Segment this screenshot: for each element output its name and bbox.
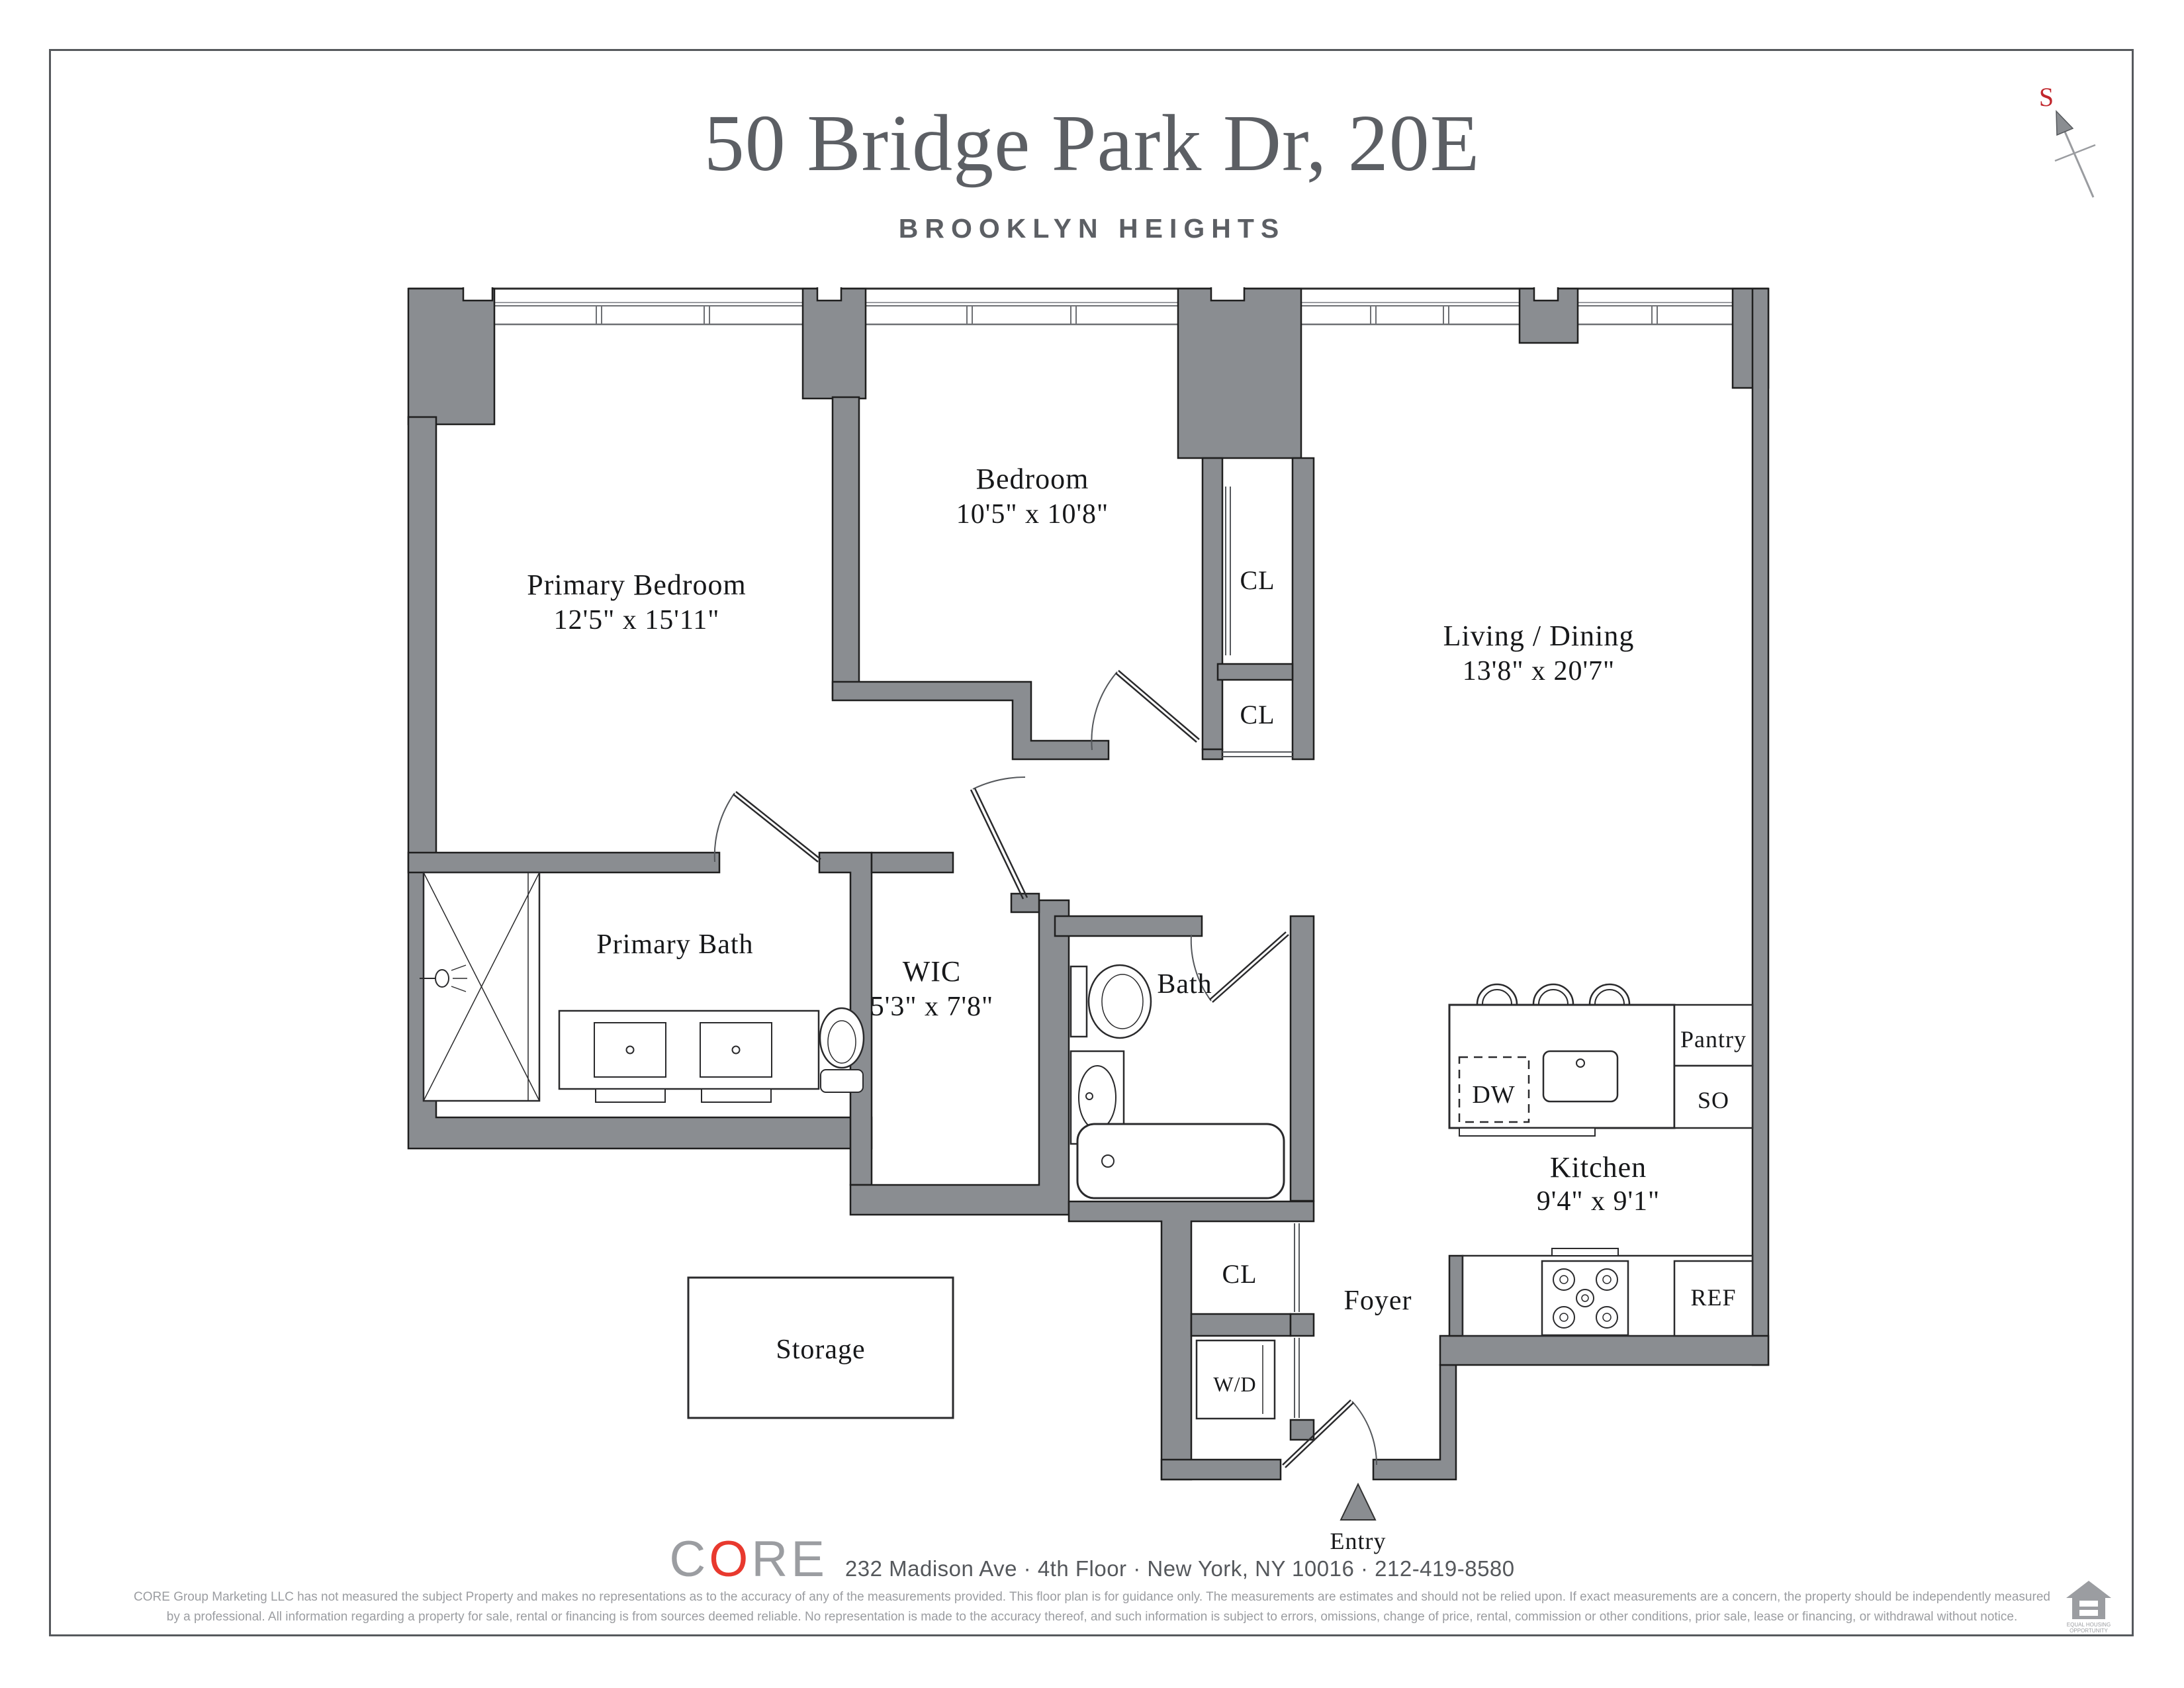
label-living-dining: Living / Dining bbox=[1443, 620, 1635, 652]
brokerage-address: 232 Madison Ave · 4th Floor · New York, … bbox=[845, 1556, 1515, 1581]
footer-brand-row: CORE 232 Madison Ave · 4th Floor · New Y… bbox=[0, 1534, 2184, 1585]
window-mullions bbox=[596, 306, 1657, 324]
eho-text-2: OPPORTUNITY bbox=[2070, 1628, 2108, 1634]
core-logo-o: O bbox=[709, 1531, 751, 1587]
compass-south-label: S bbox=[2039, 82, 2054, 112]
label-primary-bedroom: Primary Bedroom bbox=[527, 569, 747, 601]
label-closet-hall: CL bbox=[1240, 700, 1275, 729]
core-logo-re: RE bbox=[751, 1531, 828, 1587]
primary-bath-fixtures bbox=[420, 872, 864, 1102]
floorplan-page: 50 Bridge Park Dr, 20E BROOKLYN HEIGHTS bbox=[0, 0, 2184, 1688]
label-so: SO bbox=[1698, 1087, 1729, 1113]
dims-living-dining: 13'8" x 20'7" bbox=[1463, 656, 1615, 686]
dims-kitchen: 9'4" x 9'1" bbox=[1537, 1186, 1660, 1217]
label-bath: Bath bbox=[1157, 969, 1212, 1000]
eho-text-1: EQUAL HOUSING bbox=[2067, 1622, 2111, 1628]
column bbox=[1178, 289, 1301, 458]
label-bedroom: Bedroom bbox=[976, 463, 1089, 495]
label-pantry: Pantry bbox=[1680, 1026, 1747, 1053]
dims-wic: 5'3" x 7'8" bbox=[870, 992, 993, 1022]
label-wic: WIC bbox=[903, 955, 962, 988]
dims-primary-bedroom: 12'5" x 15'11" bbox=[554, 605, 720, 635]
label-storage: Storage bbox=[776, 1335, 865, 1365]
label-wd: W/D bbox=[1213, 1372, 1256, 1396]
label-closet-bedroom: CL bbox=[1240, 565, 1275, 595]
toilet bbox=[820, 1008, 864, 1092]
equal-housing-logo: EQUAL HOUSING OPPORTUNITY bbox=[2064, 1579, 2114, 1635]
label-primary-bath: Primary Bath bbox=[596, 929, 753, 960]
toilet bbox=[1071, 965, 1151, 1038]
label-ref: REF bbox=[1690, 1284, 1736, 1311]
east-wall bbox=[1752, 289, 1768, 1365]
disclaimer-line-1: CORE Group Marketing LLC has not measure… bbox=[99, 1587, 2085, 1607]
bath-fixtures bbox=[1071, 965, 1284, 1198]
bathtub bbox=[1077, 1124, 1284, 1198]
label-foyer: Foyer bbox=[1344, 1286, 1412, 1316]
core-logo-c: C bbox=[669, 1531, 709, 1587]
stove bbox=[1542, 1261, 1628, 1335]
disclaimer-line-2: by a professional. All information regar… bbox=[99, 1607, 2085, 1627]
column bbox=[408, 289, 494, 424]
dims-bedroom: 10'5" x 10'8" bbox=[956, 499, 1109, 530]
floor-plan-drawing: S Primary Bedroom 12'5" x 15'11" Bedroom… bbox=[0, 0, 2184, 1688]
entry-arrow bbox=[1341, 1484, 1375, 1520]
label-kitchen: Kitchen bbox=[1550, 1151, 1647, 1184]
label-closet-foyer: CL bbox=[1222, 1259, 1257, 1289]
compass-arrow-icon bbox=[2056, 111, 2073, 135]
label-dishwasher: DW bbox=[1472, 1081, 1515, 1109]
column bbox=[803, 289, 866, 399]
core-logo: CORE bbox=[669, 1534, 828, 1585]
disclaimer: CORE Group Marketing LLC has not measure… bbox=[99, 1587, 2085, 1627]
compass: S bbox=[2039, 82, 2095, 197]
bar-stools bbox=[1477, 984, 1629, 1004]
